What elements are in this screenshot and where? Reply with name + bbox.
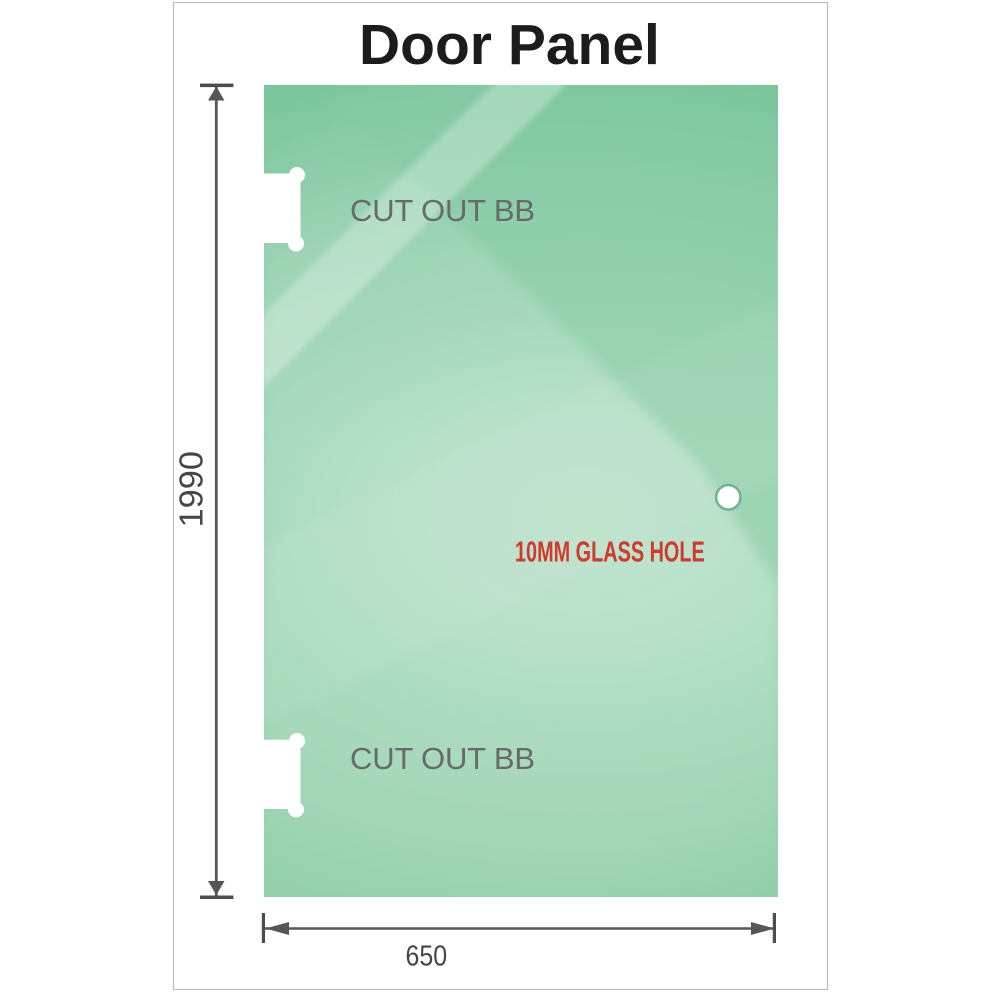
svg-text:1990: 1990 <box>174 451 210 527</box>
svg-text:650: 650 <box>406 940 448 972</box>
